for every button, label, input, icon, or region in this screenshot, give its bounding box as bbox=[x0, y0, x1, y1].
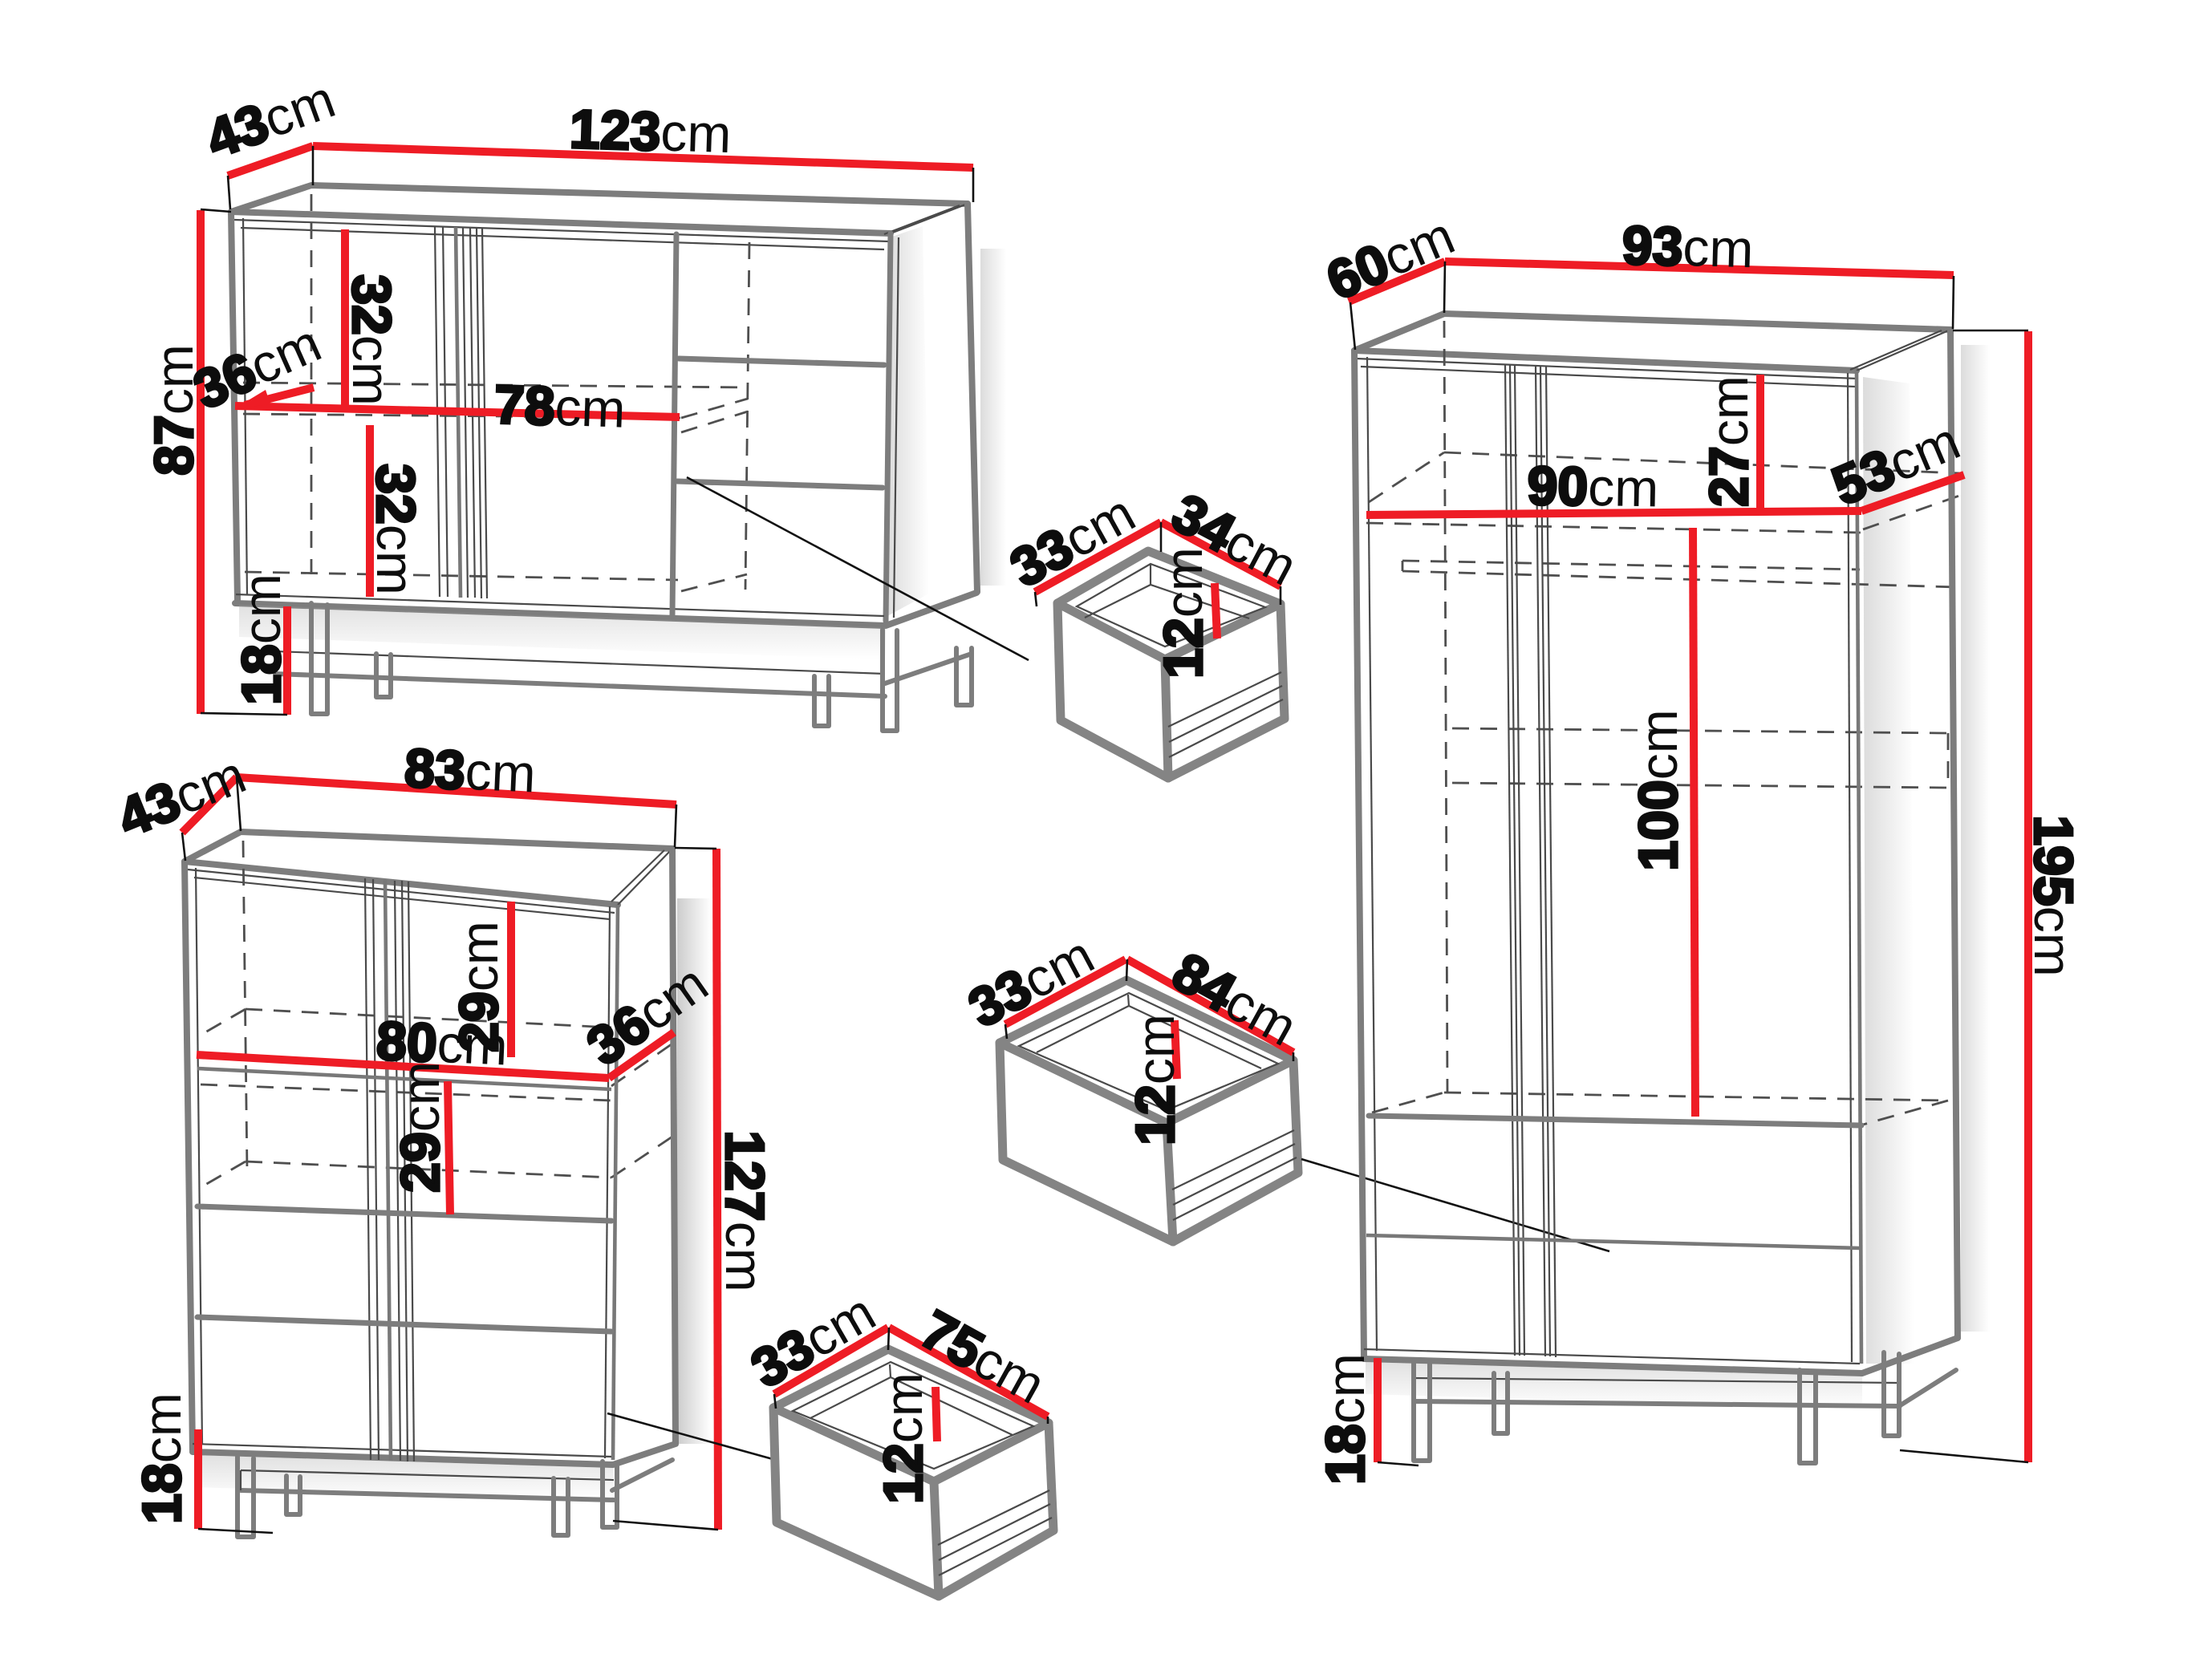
svg-text:123cm: 123cm bbox=[569, 99, 733, 164]
svg-text:12cm: 12cm bbox=[873, 1372, 934, 1504]
svg-text:83cm: 83cm bbox=[404, 737, 538, 804]
svg-text:32cm: 32cm bbox=[365, 464, 426, 595]
svg-text:195cm: 195cm bbox=[2023, 815, 2084, 976]
svg-text:29cm: 29cm bbox=[390, 1061, 451, 1193]
svg-text:93cm: 93cm bbox=[1621, 215, 1755, 280]
svg-text:78cm: 78cm bbox=[493, 374, 627, 440]
svg-text:32cm: 32cm bbox=[341, 274, 402, 406]
svg-text:12cm: 12cm bbox=[1153, 547, 1214, 679]
svg-text:90cm: 90cm bbox=[1527, 456, 1659, 519]
svg-text:18cm: 18cm bbox=[1315, 1353, 1376, 1485]
svg-text:12cm: 12cm bbox=[1125, 1014, 1186, 1145]
svg-text:100cm: 100cm bbox=[1628, 709, 1689, 870]
svg-text:18cm: 18cm bbox=[231, 574, 292, 705]
svg-text:127cm: 127cm bbox=[714, 1130, 775, 1291]
svg-text:18cm: 18cm bbox=[132, 1392, 193, 1524]
svg-text:27cm: 27cm bbox=[1699, 375, 1759, 507]
